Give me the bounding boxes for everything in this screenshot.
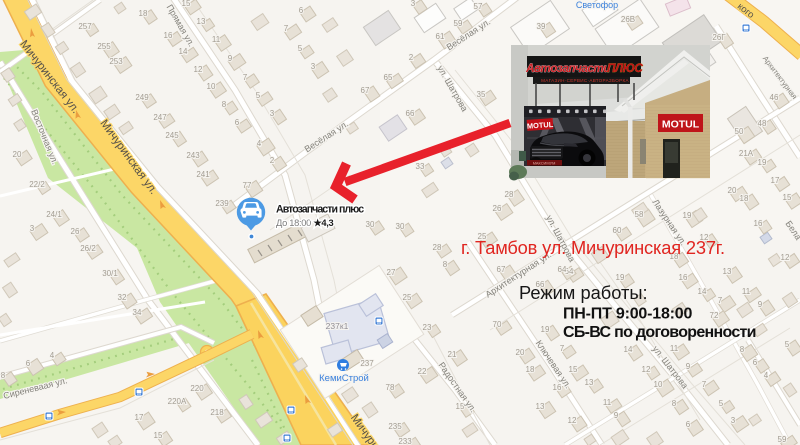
svg-text:МАГАЗИН·СЕРВИС·АВТОРАЗБОРКА: МАГАЗИН·СЕРВИС·АВТОРАЗБОРКА <box>541 78 629 83</box>
svg-text:ПЛЮС: ПЛЮС <box>607 61 643 75</box>
svg-text:СБ-ВС по договоренности: СБ-ВС по договоренности <box>563 324 756 341</box>
svg-text:Режим работы:: Режим работы: <box>519 282 648 303</box>
svg-text:МАКСИМУМ: МАКСИМУМ <box>533 161 556 166</box>
svg-text:MOTUL: MOTUL <box>662 119 700 131</box>
svg-text:MOTUL: MOTUL <box>527 120 554 131</box>
svg-text:ПН-ПТ 9:00-18:00: ПН-ПТ 9:00-18:00 <box>563 306 692 323</box>
svg-text:Автозапчасти: Автозапчасти <box>525 61 610 75</box>
svg-text:До 18:00 ★4,3: До 18:00 ★4,3 <box>276 218 334 228</box>
svg-text:Автозапчасти плюс: Автозапчасти плюс <box>276 204 364 216</box>
svg-text:г. Тамбов ул. Мичуринская 237г: г. Тамбов ул. Мичуринская 237г. <box>461 237 725 258</box>
